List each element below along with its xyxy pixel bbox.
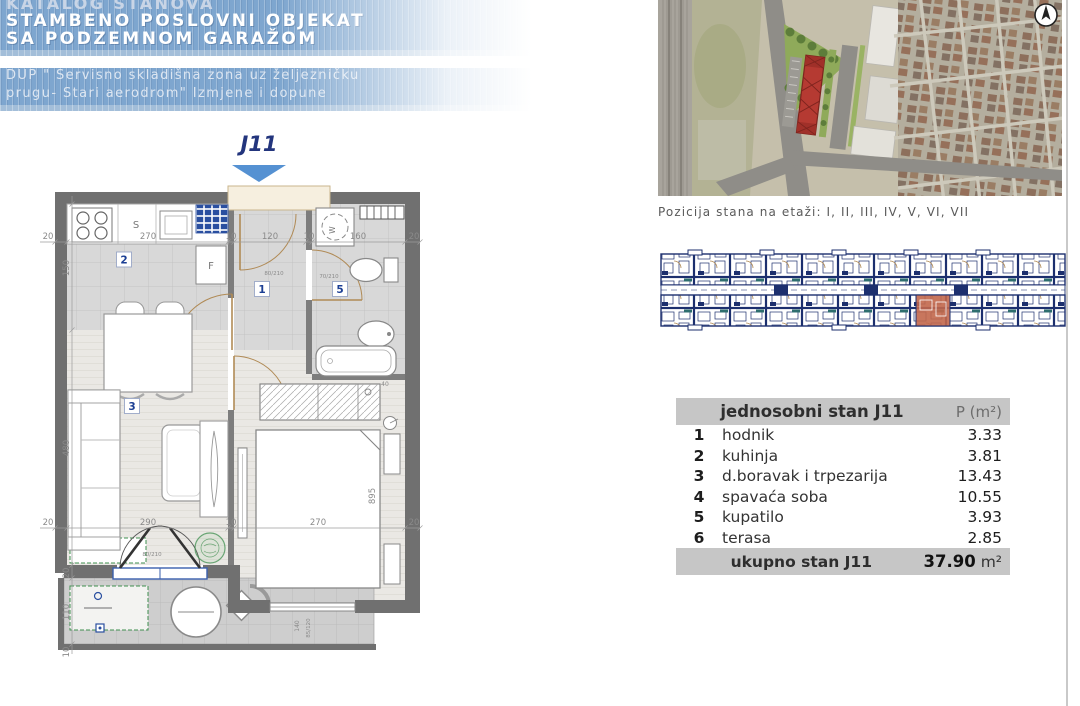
total-area: 37.90 m² [898, 552, 1002, 571]
room-area: 2.85 [918, 529, 1002, 548]
bed [256, 430, 380, 588]
total-value: 37.90 [924, 552, 976, 571]
svg-text:895: 895 [368, 488, 378, 504]
table-row: 1 hodnik 3.33 [676, 425, 1010, 446]
svg-text:140: 140 [294, 620, 301, 632]
svg-text:110: 110 [62, 604, 72, 620]
svg-text:85/120: 85/120 [306, 618, 312, 638]
svg-text:120: 120 [262, 232, 278, 242]
unit-label: J11 [236, 132, 277, 156]
room-name: kupatilo [722, 508, 918, 527]
location-map-area [658, 0, 1062, 200]
table-row: 4 spavaća soba 10.55 [676, 487, 1010, 508]
table-header: jednosobni stan J11 P (m²) [676, 398, 1010, 425]
svg-text:20: 20 [409, 518, 420, 528]
plan-subtitle-line2: prugu- Stari aerodrom" Izmjene i dopune [6, 86, 560, 101]
svg-text:80/210: 80/210 [142, 552, 162, 558]
room-label-2: 2 [120, 255, 127, 267]
building-title-line2: SA PODZEMNOM GARAŽOM [6, 31, 560, 48]
compass-icon [1035, 4, 1057, 26]
table-area-header: P (m²) [918, 403, 1002, 421]
building-title-line1: STAMBENO POSLOVNI OBJEKAT [6, 13, 560, 30]
total-unit: m² [981, 553, 1002, 571]
svg-text:10: 10 [62, 647, 72, 658]
svg-text:150: 150 [62, 260, 72, 276]
dining-table [104, 314, 192, 392]
table-row: 2 kuhinja 3.81 [676, 446, 1010, 467]
room-label-5: 5 [336, 284, 343, 296]
blue-tiles [196, 205, 228, 233]
svg-text:160: 160 [350, 232, 366, 242]
floor-plan-area: J11 [28, 118, 428, 672]
table-row: 5 kupatilo 3.93 [676, 507, 1010, 528]
svg-text:80/210: 80/210 [264, 271, 284, 277]
room-number: 6 [676, 529, 722, 548]
svg-text:480: 480 [62, 440, 72, 456]
room-label-3: 3 [128, 401, 135, 413]
bedroom-furniture [238, 384, 400, 588]
room-area: 13.43 [918, 467, 1002, 486]
room-area: 3.93 [918, 508, 1002, 527]
floor-position-caption: Pozicija stana na etaži: I, II, III, IV,… [658, 205, 1062, 219]
svg-text:10: 10 [304, 232, 315, 242]
svg-text:270: 270 [310, 518, 326, 528]
building-floor-strip [658, 246, 1068, 334]
svg-text:20: 20 [43, 232, 54, 242]
svg-text:70/210: 70/210 [319, 274, 339, 280]
room-area: 3.33 [918, 426, 1002, 445]
room-name: terasa [722, 529, 918, 548]
svg-text:F: F [208, 261, 214, 272]
room-number: 5 [676, 508, 722, 527]
room-number: 4 [676, 488, 722, 507]
nightstand-bottom [384, 544, 400, 584]
svg-text:290: 290 [140, 518, 156, 528]
svg-text:20: 20 [409, 232, 420, 242]
banner-gap [0, 56, 560, 65]
nightstand-top [384, 434, 400, 474]
svg-text:10: 10 [226, 518, 237, 528]
total-label: ukupno stan J11 [676, 553, 898, 571]
svg-text:40: 40 [381, 381, 389, 388]
table-row: 6 terasa 2.85 [676, 528, 1010, 549]
toilet [350, 259, 382, 282]
svg-text:270: 270 [140, 232, 156, 242]
svg-text:S: S [133, 220, 139, 231]
title-banner: KATALOG STANOVA STAMBENO POSLOVNI OBJEKA… [0, 0, 560, 50]
railway-strip [658, 0, 692, 196]
green-seal-stamp [195, 533, 225, 563]
satellite-map [658, 0, 1062, 196]
banner-divider-2 [0, 105, 560, 111]
units-bottom-row [661, 295, 1065, 326]
room-name: hodnik [722, 426, 918, 445]
room-area: 10.55 [918, 488, 1002, 507]
entrance-niche [228, 186, 330, 210]
room-number: 3 [676, 467, 722, 486]
page-header: KATALOG STANOVA STAMBENO POSLOVNI OBJEKA… [0, 0, 560, 111]
svg-text:W: W [328, 226, 337, 234]
unit-arrow-icon [232, 165, 286, 182]
room-name: spavaća soba [722, 488, 918, 507]
plan-subtitle-line1: DUP " Servisno skladišna zona uz željezn… [6, 68, 560, 83]
floor-plan: J11 [28, 118, 428, 668]
room-label-1: 1 [258, 284, 265, 296]
room-area: 3.81 [918, 447, 1002, 466]
subtitle-banner: DUP " Servisno skladišna zona uz željezn… [0, 68, 560, 105]
units-top-row [661, 254, 1065, 285]
svg-text:20: 20 [62, 568, 72, 579]
table-footer: ukupno stan J11 37.90 m² [676, 548, 1010, 575]
page-border-line [1066, 0, 1068, 706]
area-table: jednosobni stan J11 P (m²) 1 hodnik 3.33… [676, 398, 1010, 575]
building-floor-plan-area [658, 246, 1068, 338]
table-title: jednosobni stan J11 [676, 402, 918, 421]
sofa [68, 390, 120, 550]
svg-text:20: 20 [43, 518, 54, 528]
coffee-table [162, 425, 205, 501]
table-row: 3 d.boravak i trpezarija 13.43 [676, 466, 1010, 487]
highlighted-unit [916, 295, 950, 326]
svg-text:10: 10 [226, 232, 237, 242]
dining-set [104, 302, 192, 399]
bedroom-window [270, 603, 355, 611]
room-number: 1 [676, 426, 722, 445]
room-name: d.boravak i trpezarija [722, 467, 918, 486]
room-name: kuhinja [722, 447, 918, 466]
bathtub [316, 346, 396, 376]
room-number: 2 [676, 447, 722, 466]
